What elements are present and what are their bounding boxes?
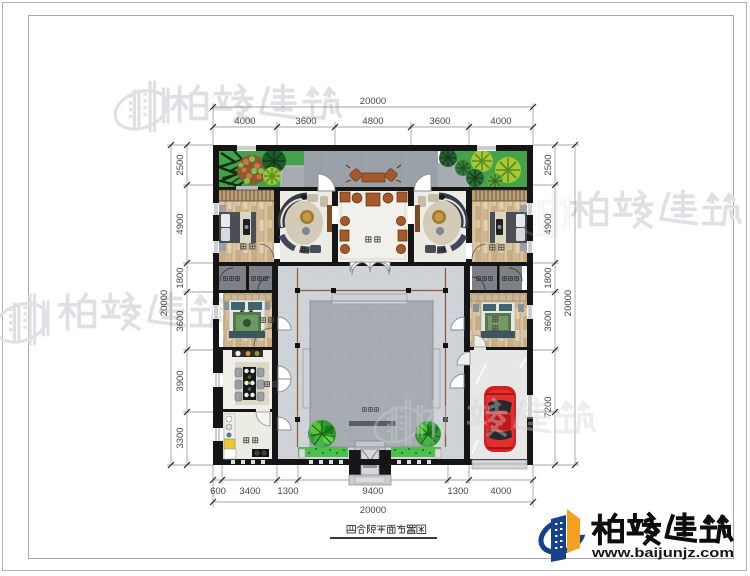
svg-text:1800: 1800 [175, 267, 186, 288]
svg-text:20000: 20000 [563, 290, 574, 316]
svg-text:3600: 3600 [175, 310, 186, 331]
svg-text:4000: 4000 [234, 116, 255, 127]
svg-text:4000: 4000 [490, 486, 511, 497]
svg-text:20000: 20000 [159, 290, 170, 316]
svg-text:1300: 1300 [447, 486, 468, 497]
svg-text:4000: 4000 [490, 116, 511, 127]
svg-text:20000: 20000 [360, 505, 386, 516]
svg-text:4800: 4800 [362, 116, 383, 127]
svg-text:1300: 1300 [277, 486, 298, 497]
svg-text:3400: 3400 [239, 486, 260, 497]
svg-text:600: 600 [210, 486, 226, 497]
svg-text:www.baijunjz.com: www.baijunjz.com [591, 546, 734, 560]
svg-text:9400: 9400 [362, 486, 383, 497]
svg-text:3600: 3600 [429, 116, 450, 127]
svg-text:3600: 3600 [543, 310, 554, 331]
svg-text:2500: 2500 [543, 154, 554, 175]
svg-text:2500: 2500 [175, 154, 186, 175]
svg-text:3600: 3600 [295, 116, 316, 127]
svg-text:4900: 4900 [175, 213, 186, 234]
svg-text:3900: 3900 [175, 370, 186, 391]
svg-text:20000: 20000 [360, 96, 386, 107]
svg-text:7200: 7200 [543, 396, 554, 417]
svg-text:1800: 1800 [543, 267, 554, 288]
svg-text:3300: 3300 [175, 427, 186, 448]
